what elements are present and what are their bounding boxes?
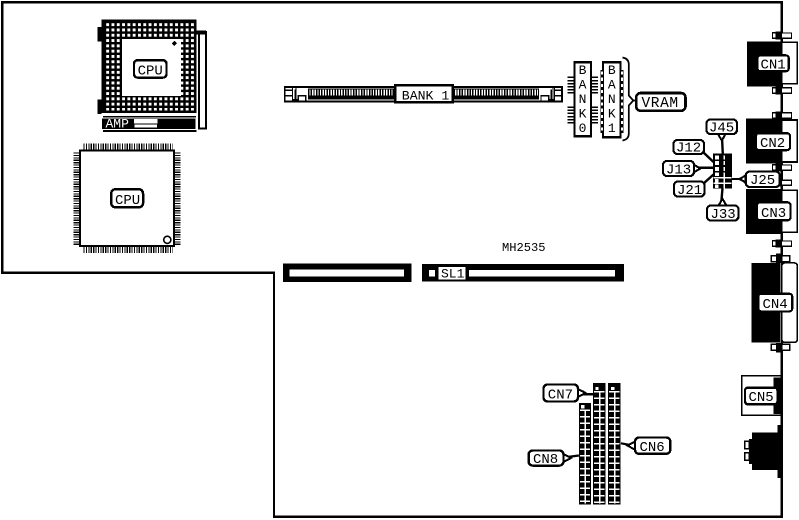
svg-text:J45: J45 (709, 120, 734, 136)
svg-text:CN4: CN4 (763, 297, 788, 313)
svg-text:N: N (579, 92, 587, 107)
svg-text:CN1: CN1 (761, 57, 786, 73)
svg-text:CPU: CPU (138, 64, 163, 80)
svg-text:BANK 1: BANK 1 (402, 88, 450, 103)
svg-text:AMP: AMP (106, 117, 130, 132)
svg-text:1: 1 (608, 121, 616, 136)
svg-text:B: B (579, 63, 587, 78)
svg-text:MH2535: MH2535 (502, 241, 546, 255)
svg-text:VRAM: VRAM (642, 96, 679, 112)
svg-text:J25: J25 (750, 173, 775, 189)
svg-text:N: N (608, 92, 616, 107)
svg-text:J33: J33 (711, 207, 736, 223)
svg-text:A: A (579, 77, 587, 92)
svg-text:CN5: CN5 (749, 390, 774, 406)
svg-text:CN3: CN3 (761, 206, 786, 222)
svg-text:CN8: CN8 (533, 452, 558, 468)
svg-text:K: K (579, 106, 587, 121)
svg-text:CN7: CN7 (548, 387, 573, 403)
svg-text:CN6: CN6 (640, 440, 665, 456)
svg-text:J12: J12 (676, 141, 701, 157)
svg-text:K: K (608, 106, 616, 121)
svg-text:CN2: CN2 (760, 136, 785, 152)
svg-text:SL1: SL1 (441, 267, 465, 282)
svg-text:0: 0 (579, 121, 587, 136)
svg-text:B: B (608, 63, 616, 78)
svg-text:J21: J21 (677, 183, 702, 199)
svg-text:A: A (608, 77, 616, 92)
svg-text:J13: J13 (666, 162, 691, 178)
svg-text:CPU: CPU (115, 193, 140, 209)
